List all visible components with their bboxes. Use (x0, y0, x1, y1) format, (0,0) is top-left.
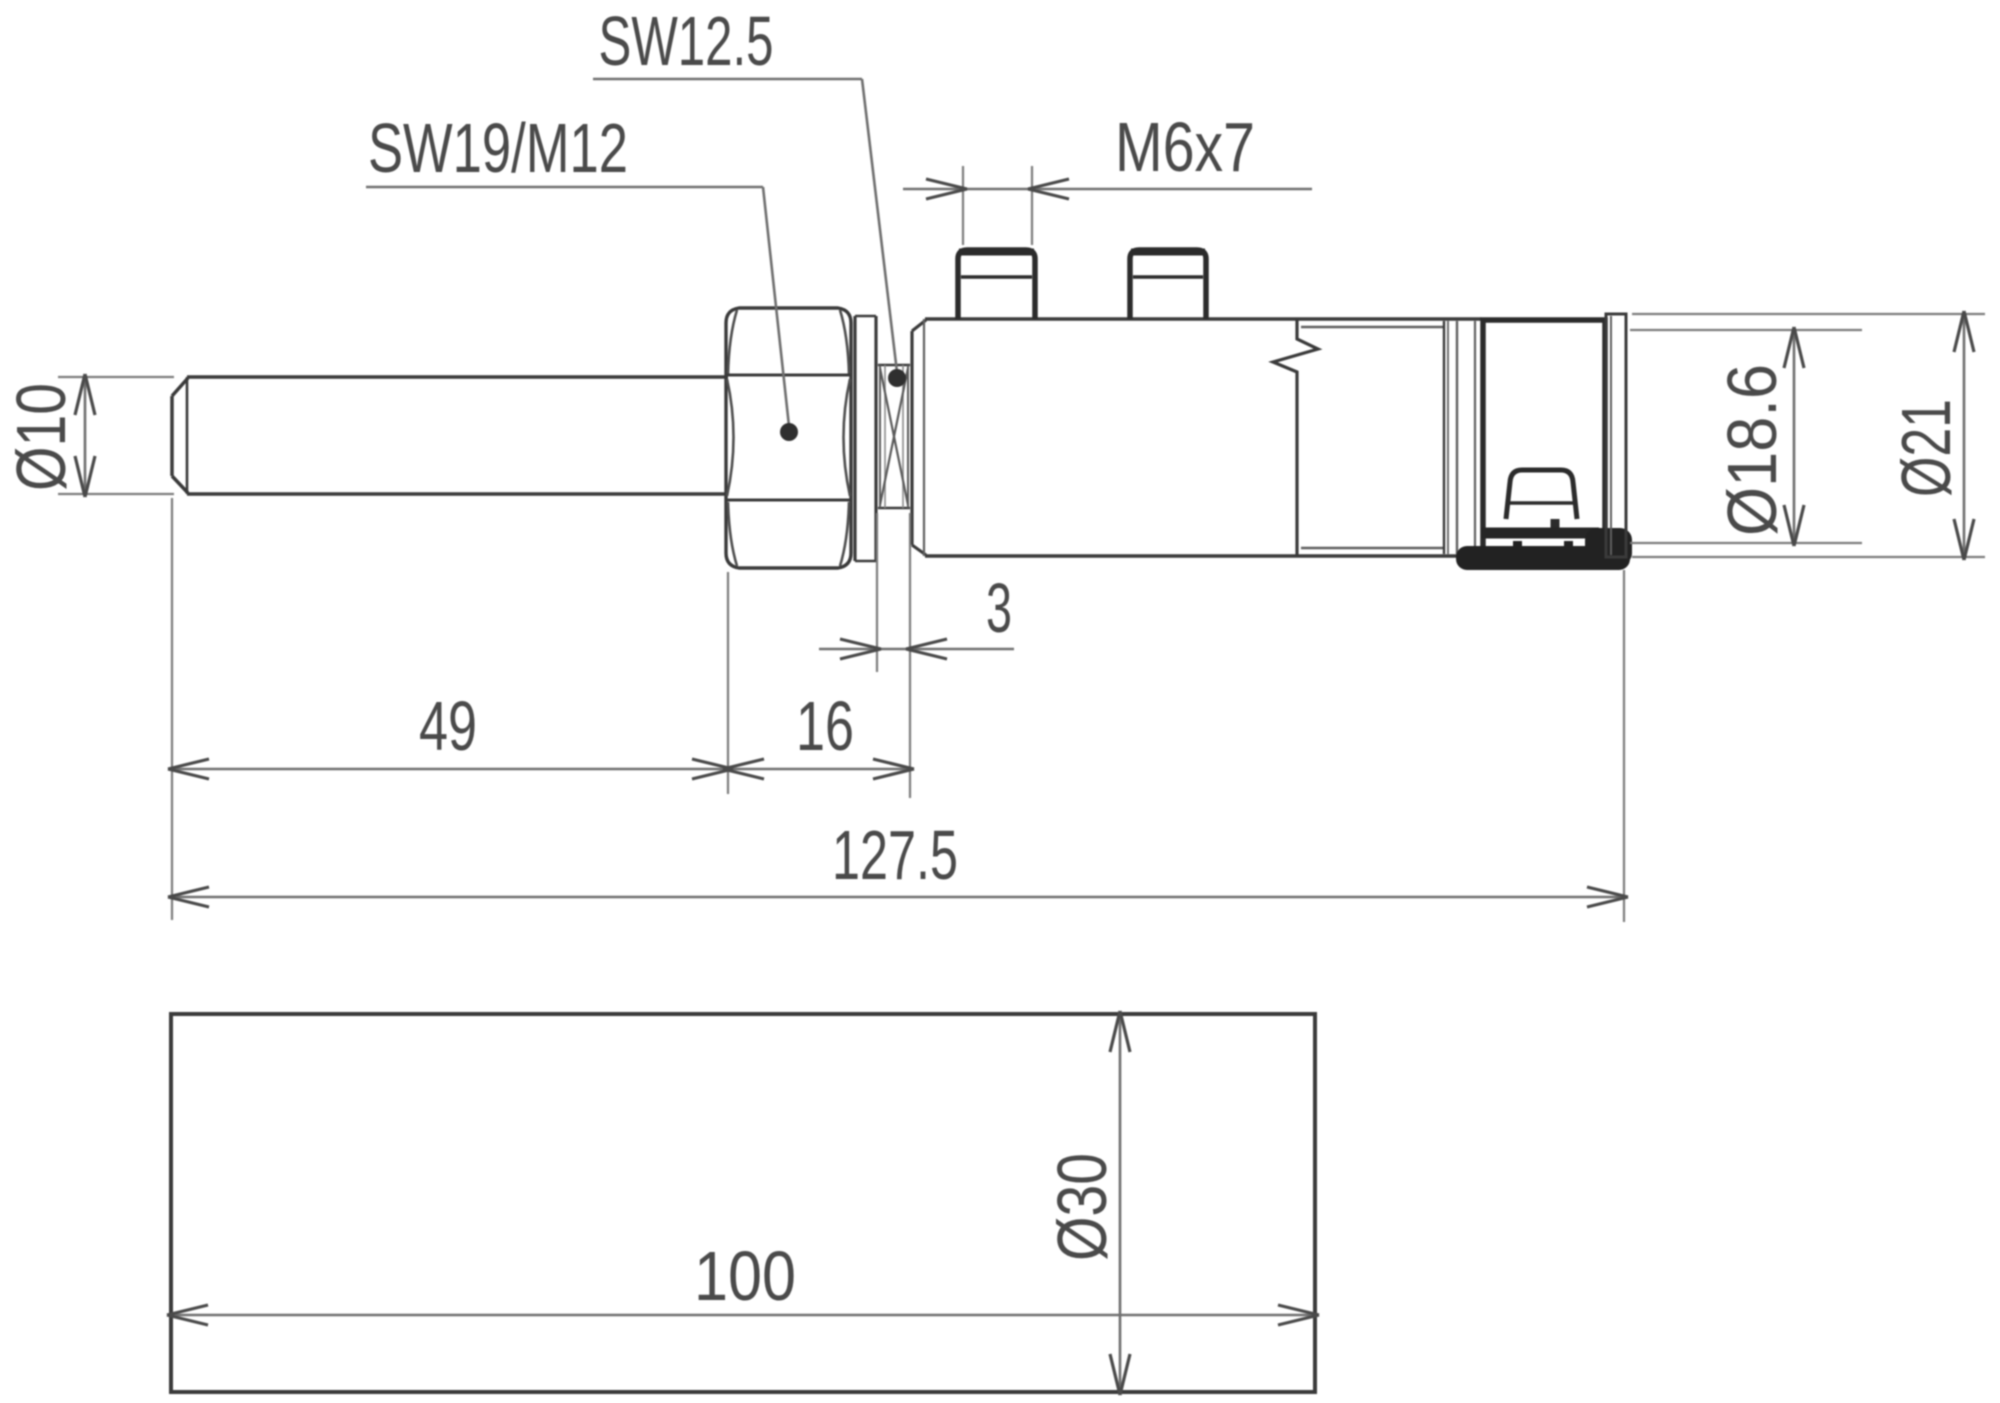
svg-text:3: 3 (986, 569, 1012, 647)
svg-text:Ø21: Ø21 (1887, 399, 1965, 497)
svg-text:Ø10: Ø10 (2, 383, 80, 491)
svg-text:100: 100 (694, 1237, 796, 1315)
svg-text:M6x7: M6x7 (1115, 108, 1255, 186)
svg-text:Ø30: Ø30 (1043, 1153, 1121, 1261)
svg-text:SW12.5: SW12.5 (599, 2, 774, 80)
svg-text:SW19/M12: SW19/M12 (368, 109, 628, 187)
svg-text:49: 49 (419, 687, 477, 765)
svg-text:Ø18.6: Ø18.6 (1713, 364, 1791, 536)
svg-text:16: 16 (796, 687, 854, 765)
svg-text:127.5: 127.5 (832, 816, 958, 894)
